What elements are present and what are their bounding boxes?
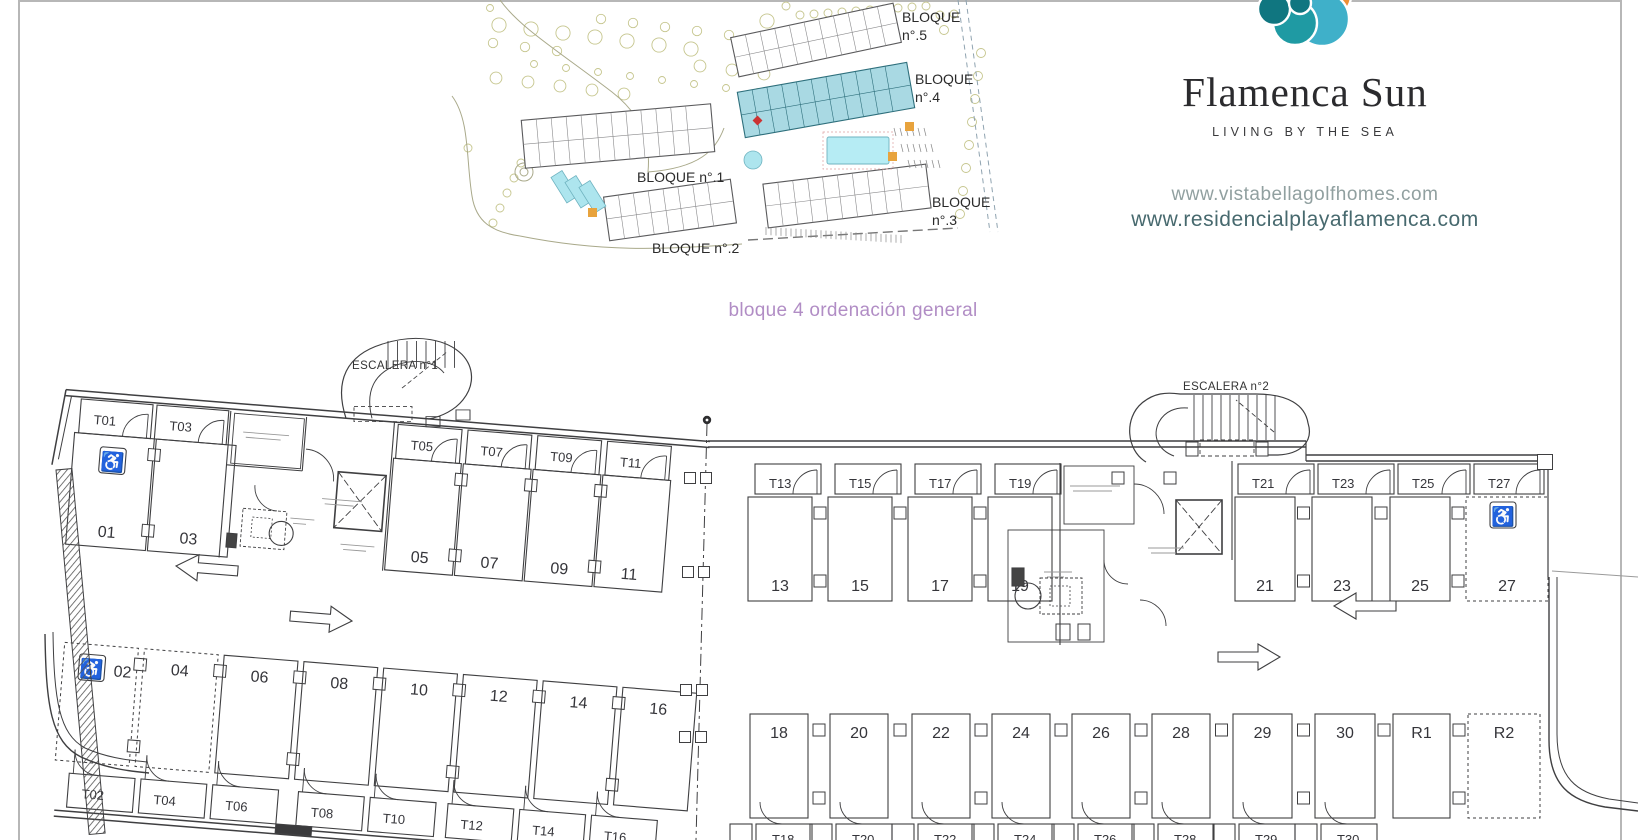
parking-label: 17 [931, 578, 949, 595]
trastero-label: T10 [382, 810, 406, 827]
road [452, 96, 520, 236]
tree [488, 38, 497, 47]
tree [522, 76, 534, 88]
tree [520, 42, 529, 51]
pillar [894, 507, 906, 519]
trastero-cell [1052, 824, 1074, 840]
pillar [814, 507, 826, 519]
site-building-block-5 [731, 3, 902, 77]
door-arc [1104, 560, 1128, 584]
pillar [1216, 724, 1228, 736]
plan-rect [1078, 624, 1090, 640]
trastero-T23 [1318, 464, 1394, 494]
door-leaf [222, 420, 224, 444]
parking-label: 08 [330, 675, 349, 693]
parking-tick [913, 144, 915, 152]
wheelchair-icon: ♿ [1491, 505, 1515, 528]
pillar [127, 740, 140, 753]
brand-block: Flamenca Sun LIVING BY THE SEA www.vista… [1075, 0, 1535, 233]
pillar [594, 484, 607, 497]
trastero-label: T25 [1412, 476, 1434, 491]
tree [691, 81, 698, 88]
direction-arrow [289, 603, 353, 634]
parking-label: 12 [489, 688, 508, 706]
pillar [1538, 455, 1553, 470]
block5-label: BLOQUE [902, 9, 960, 25]
pillar [455, 473, 468, 486]
trastero-label: T08 [310, 805, 334, 822]
direction-arrow [1218, 644, 1280, 670]
pillar [524, 479, 537, 492]
door-arc [1134, 484, 1164, 514]
brand-tagline: LIVING BY THE SEA [1075, 125, 1535, 139]
door-arc [1140, 600, 1166, 626]
pillar [453, 684, 466, 697]
trastero-label: T23 [1332, 476, 1354, 491]
plan-line [302, 417, 306, 471]
door-arc [1442, 470, 1466, 494]
pillar [1453, 724, 1465, 736]
trastero-cell [1132, 824, 1154, 840]
pillar [813, 792, 825, 804]
parking-label: 03 [179, 530, 198, 548]
plan-path [1156, 408, 1188, 456]
trastero-label: T20 [852, 832, 874, 840]
pillar [683, 567, 694, 578]
door-arc [840, 802, 862, 824]
parking-label: 16 [649, 701, 668, 719]
parking-tick [938, 160, 940, 168]
trastero-cell [1295, 824, 1317, 840]
pillar [1452, 575, 1464, 587]
tree [660, 22, 669, 31]
parking-label: 26 [1092, 725, 1110, 742]
pillar [449, 549, 462, 562]
door-arc [198, 419, 224, 445]
parking-tick [931, 144, 933, 152]
block1-label: BLOQUE n°.1 [637, 169, 725, 185]
tree [965, 141, 974, 150]
pillar [1452, 507, 1464, 519]
parking-label: 13 [771, 578, 789, 595]
tree [796, 11, 804, 19]
pillar [142, 524, 155, 537]
trastero-label: T26 [1094, 832, 1116, 840]
block3-label: n°.3 [932, 212, 957, 228]
trastero-cell [730, 824, 752, 840]
parking-label: 18 [770, 725, 788, 742]
drawing-caption: bloque 4 ordenación general [603, 300, 1103, 322]
tree [684, 42, 698, 56]
door-arc [431, 437, 457, 463]
tiny-text-lines [341, 544, 375, 547]
direction-arrow [175, 553, 239, 584]
pillar [1453, 792, 1465, 804]
door-arc [253, 485, 279, 511]
door-leaf [525, 445, 527, 469]
pillar [1298, 575, 1310, 587]
pillar [588, 560, 601, 573]
trastero-label: T12 [460, 817, 484, 834]
tree [694, 60, 706, 72]
equipment-dashed [240, 508, 287, 549]
tree [464, 144, 472, 152]
door-arc [122, 412, 148, 438]
tree [556, 26, 570, 40]
trastero-label: T03 [169, 418, 193, 435]
tree [810, 10, 818, 18]
equipment-dark [1012, 568, 1024, 586]
pillar [685, 473, 696, 484]
tree [692, 26, 701, 35]
pillar [148, 448, 161, 461]
block3-label: BLOQUE [932, 194, 990, 210]
utility-room [231, 413, 305, 468]
tree [531, 61, 538, 68]
parking-label: 28 [1172, 725, 1190, 742]
door-arc [1286, 470, 1310, 494]
trastero-label: T06 [225, 798, 249, 815]
parking-label: 29 [1254, 725, 1272, 742]
website-url-primary: www.vistabellagolfhomes.com [1075, 183, 1535, 207]
pillar [974, 575, 986, 587]
garage-floor-plan: T01T03T05T07T09T11♿010305070911♿02040608… [0, 330, 1638, 840]
pillar [1135, 792, 1147, 804]
trastero-label: T28 [1174, 832, 1196, 840]
site-plan: BLOQUE n°.5 BLOQUE n°.4 BLOQUE n°.1 BLOQ… [440, 0, 1000, 260]
trastero-label: T16 [603, 828, 627, 840]
pillar [532, 690, 545, 703]
trastero-label: T14 [532, 823, 556, 840]
tree [782, 2, 790, 10]
perimeter-wall [1557, 577, 1638, 803]
pillar [974, 507, 986, 519]
parking-label: 24 [1012, 725, 1030, 742]
pillar [1135, 724, 1147, 736]
site-building-block-3 [763, 164, 931, 228]
tree [487, 5, 494, 12]
plan-path [370, 362, 444, 419]
website-url-secondary: www.residencialplayaflamenca.com [1075, 207, 1535, 233]
equipment-dark [226, 533, 237, 548]
tree [760, 14, 774, 28]
pillar [373, 677, 386, 690]
trastero-label: T17 [929, 476, 951, 491]
parking-label: 21 [1256, 578, 1274, 595]
tree [940, 26, 949, 35]
parking-label: 10 [409, 681, 428, 699]
door-arc [641, 454, 667, 480]
trastero-label: T19 [1009, 476, 1031, 491]
left-wing: T01T03T05T07T09T11♿010305070911♿02040608… [24, 389, 717, 840]
wheelchair-icon: ♿ [100, 450, 125, 475]
brand-urls: www.vistabellagolfhomes.com www.residenc… [1075, 183, 1535, 233]
site-marker-orange [905, 122, 914, 131]
parking-label: 15 [851, 578, 869, 595]
stair-arrow [1236, 400, 1274, 432]
door-arc [1002, 802, 1024, 824]
pillar [975, 792, 987, 804]
pillar [293, 671, 306, 684]
plan-rect [1256, 442, 1268, 456]
parking-label: 04 [170, 662, 189, 680]
door-leaf [595, 450, 597, 474]
pillar [1164, 472, 1176, 484]
parking-tick [918, 128, 920, 136]
door-arc [793, 470, 817, 494]
pillar [975, 724, 987, 736]
pillar [1298, 507, 1310, 519]
trastero-label: T05 [410, 438, 434, 455]
logo-petal-teal_dark [1289, 0, 1311, 14]
trastero-cell [1213, 824, 1235, 840]
trastero-label: T29 [1255, 832, 1277, 840]
parking-tick [919, 144, 921, 152]
trastero-cell [810, 824, 832, 840]
door-arc [953, 470, 977, 494]
tree [620, 34, 634, 48]
trastero-label: T09 [550, 449, 574, 466]
stair-landing [1200, 440, 1254, 456]
tree [503, 189, 511, 197]
tree [628, 18, 637, 27]
tree [492, 18, 506, 32]
trastero-label: T18 [772, 832, 794, 840]
parking-tick [894, 128, 896, 136]
pool-round [744, 151, 762, 169]
trastero-label: T27 [1488, 476, 1510, 491]
door-arc [1325, 802, 1347, 824]
tree [496, 204, 504, 212]
tree [974, 72, 983, 81]
tiny-text-lines [290, 518, 314, 520]
trastero-label: T24 [1014, 832, 1036, 840]
plan-path [342, 338, 472, 419]
trastero-label: T01 [93, 412, 117, 429]
block4-label: BLOQUE [915, 71, 973, 87]
parking-label: R2 [1494, 725, 1515, 742]
roundabout [520, 168, 528, 176]
parking-tick [924, 128, 926, 136]
trastero-T21 [1238, 464, 1314, 494]
door-arc [1516, 470, 1540, 494]
trastero-label: T11 [619, 454, 642, 471]
door-arc [1082, 802, 1104, 824]
parking-label: 11 [620, 566, 638, 584]
door-arc [1162, 802, 1184, 824]
pillar [697, 685, 708, 696]
tree [962, 164, 971, 173]
parking-label: 14 [569, 694, 588, 712]
door-arc [501, 443, 527, 469]
plan-rect [456, 410, 470, 420]
plan-line [66, 390, 710, 442]
parking-tick [925, 144, 927, 152]
tiny-text-lines [243, 432, 289, 436]
pillar [134, 658, 147, 671]
parking-label: 05 [410, 549, 429, 567]
parking-label: 23 [1333, 578, 1351, 595]
door-arc [571, 449, 597, 475]
door-arc [922, 802, 944, 824]
pillar [1375, 507, 1387, 519]
trastero-label: T22 [934, 832, 956, 840]
parking-label: R1 [1411, 725, 1432, 742]
pillar [1378, 724, 1390, 736]
brand-logo-icon [1243, 0, 1367, 62]
parking-label: 09 [550, 560, 569, 578]
parking-label: 30 [1336, 725, 1354, 742]
site-marker-orange [588, 208, 597, 217]
tree [627, 73, 634, 80]
tree [595, 69, 602, 76]
door-leaf [665, 456, 667, 480]
pillar [680, 732, 691, 743]
door-arc [1366, 470, 1390, 494]
trastero-label: T04 [153, 792, 177, 809]
trastero-label: T13 [769, 476, 791, 491]
brand-name: Flamenca Sun [1075, 68, 1535, 116]
plan-rect [1186, 442, 1198, 456]
right-wing: T13T15T17T19T21T23T25T2713151719212325♿2… [708, 441, 1553, 840]
tree [596, 14, 605, 23]
tree [489, 219, 497, 227]
tiny-text-lines [246, 437, 281, 440]
boundary-dashed [748, 228, 958, 240]
parking-label: 27 [1498, 578, 1516, 595]
pillar [894, 724, 906, 736]
site-building-block-1 [521, 104, 714, 168]
block4-label: n°.4 [915, 89, 940, 105]
door-arc [760, 802, 782, 824]
tree [554, 80, 566, 92]
plan-rect [1056, 624, 1070, 640]
perimeter-wall [1549, 577, 1638, 811]
pillar [681, 685, 692, 696]
pillar [287, 753, 300, 766]
tree [586, 84, 598, 96]
trastero-label: T21 [1252, 476, 1274, 491]
parking-label: 22 [932, 725, 950, 742]
parking-label: 20 [850, 725, 868, 742]
tree [652, 38, 666, 52]
block2-label: BLOQUE n°.2 [652, 240, 740, 256]
tiny-text-lines [322, 499, 362, 502]
parking-tick [907, 144, 909, 152]
site-marker-orange [888, 152, 897, 161]
parking-label: 07 [480, 555, 499, 573]
staircase-2 [1130, 393, 1310, 462]
pillar [814, 575, 826, 587]
pillar [446, 765, 459, 778]
pillar [699, 567, 710, 578]
door-arc [304, 449, 336, 481]
plan-line [58, 395, 71, 459]
parking-tick [901, 144, 903, 152]
tree [524, 22, 538, 36]
site-building-block-4 [737, 62, 914, 137]
tiny-text-lines [325, 504, 354, 506]
logo-petal-teal_dark [1258, 0, 1290, 25]
pillar [213, 664, 226, 677]
site-building-block-2 [604, 179, 737, 240]
pillar [1298, 792, 1310, 804]
ground-line [1552, 571, 1638, 577]
section-line [696, 424, 707, 840]
pillar [606, 778, 619, 791]
pillar [1112, 472, 1124, 484]
equipment-dashed [1040, 578, 1082, 614]
door-arc [1033, 470, 1057, 494]
pillar [813, 724, 825, 736]
tree [563, 65, 570, 72]
tree [723, 85, 730, 92]
tree [977, 49, 986, 58]
pillar [612, 697, 625, 710]
pillar [1298, 724, 1310, 736]
trastero-cell [892, 824, 914, 840]
block5-label: n°.5 [902, 27, 927, 43]
parking-tick [900, 128, 902, 136]
door-leaf [146, 414, 148, 438]
pillar [696, 732, 707, 743]
parking-label: 01 [97, 524, 116, 542]
door-arc [1243, 802, 1265, 824]
section-marker [706, 419, 709, 422]
pillar [1055, 724, 1067, 736]
pillar [701, 473, 712, 484]
floorplan-page: { "caption": "bloque 4 ordenación genera… [0, 0, 1638, 840]
trastero-label: T07 [480, 443, 504, 460]
tree [588, 30, 602, 44]
plan-line [52, 389, 66, 465]
parking-label: 06 [250, 668, 269, 686]
direction-arrow [1334, 593, 1396, 619]
parking-label: 25 [1411, 578, 1429, 595]
trastero-cell [972, 824, 994, 840]
door-leaf [455, 439, 457, 463]
tree [659, 77, 666, 84]
pool-main [827, 137, 889, 164]
parking-tick [932, 160, 934, 168]
tiny-text-lines [293, 523, 306, 524]
tree [490, 72, 502, 84]
parking-label: 02 [113, 663, 132, 681]
door-arc [873, 470, 897, 494]
tiny-text-lines [343, 549, 366, 551]
trastero-label: T30 [1337, 832, 1359, 840]
tree [824, 9, 832, 17]
trastero-label: T15 [849, 476, 871, 491]
